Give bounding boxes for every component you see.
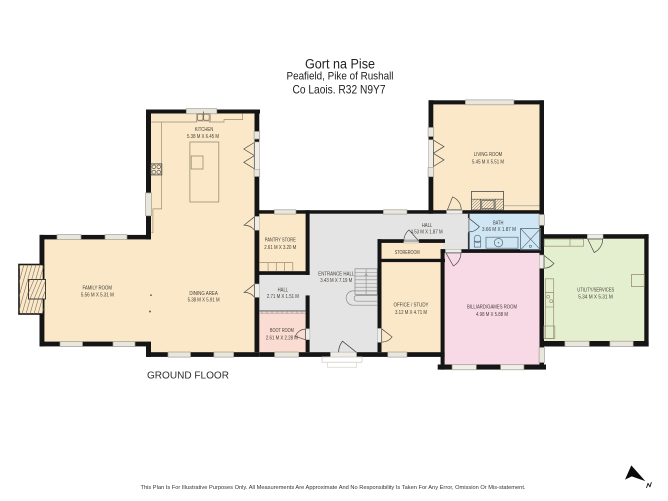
svg-text:KITCHEN: KITCHEN — [195, 127, 214, 133]
svg-text:This Plan Is For Illustrative: This Plan Is For Illustrative Purposes O… — [141, 485, 526, 491]
svg-text:PANTRY STORE: PANTRY STORE — [265, 238, 296, 244]
svg-text:Peafield, Pike of Rushall: Peafield, Pike of Rushall — [287, 71, 394, 83]
svg-text:3.12 M X 4.71 M: 3.12 M X 4.71 M — [395, 310, 427, 316]
svg-text:UTILITY/SERVICES: UTILITY/SERVICES — [577, 287, 614, 293]
svg-text:Gort na Pise: Gort na Pise — [305, 57, 375, 72]
svg-text:3.66 M X 1.87 M: 3.66 M X 1.87 M — [482, 227, 516, 233]
svg-text:3.43 M X 7.19 M: 3.43 M X 7.19 M — [320, 278, 352, 284]
svg-text:Co Laois. R32 N9Y7: Co Laois. R32 N9Y7 — [293, 83, 386, 97]
svg-text:BATH: BATH — [493, 221, 504, 227]
svg-text:LIVING ROOM: LIVING ROOM — [474, 152, 503, 158]
svg-text:5.38 M X 6.45 M: 5.38 M X 6.45 M — [187, 134, 219, 140]
svg-text:STOREROOM: STOREROOM — [395, 250, 420, 256]
svg-text:4.98 M X 5.88 M: 4.98 M X 5.88 M — [476, 312, 508, 318]
svg-text:FAMILY ROOM: FAMILY ROOM — [82, 286, 112, 292]
svg-text:ENTRANCE HALL: ENTRANCE HALL — [318, 271, 354, 277]
svg-text:4.53 M X 1.87 M: 4.53 M X 1.87 M — [411, 229, 443, 235]
svg-text:5.45 M X 5.51 M: 5.45 M X 5.51 M — [472, 159, 504, 165]
svg-text:5.38 M X 5.91 M: 5.38 M X 5.91 M — [188, 298, 220, 304]
svg-text:HALL: HALL — [422, 223, 433, 229]
svg-text:5.34 M X 5.31 M: 5.34 M X 5.31 M — [578, 295, 613, 301]
svg-text:OFFICE / STUDY: OFFICE / STUDY — [394, 303, 429, 309]
svg-text:BOOT ROOM: BOOT ROOM — [270, 328, 294, 334]
svg-text:GROUND FLOOR: GROUND FLOOR — [147, 371, 229, 382]
svg-text:2.71 M X 1.51 M: 2.71 M X 1.51 M — [267, 294, 299, 300]
svg-text:BILLIARD/GAMES ROOM: BILLIARD/GAMES ROOM — [467, 305, 517, 311]
svg-text:DINING AREA: DINING AREA — [189, 291, 218, 297]
svg-text:2.61 M X 2.28 M: 2.61 M X 2.28 M — [266, 335, 298, 341]
svg-text:5.56 M X 5.31 M: 5.56 M X 5.31 M — [81, 292, 114, 298]
svg-text:2.61 M X 3.20 M: 2.61 M X 3.20 M — [264, 245, 296, 251]
svg-text:HALL: HALL — [278, 288, 289, 294]
